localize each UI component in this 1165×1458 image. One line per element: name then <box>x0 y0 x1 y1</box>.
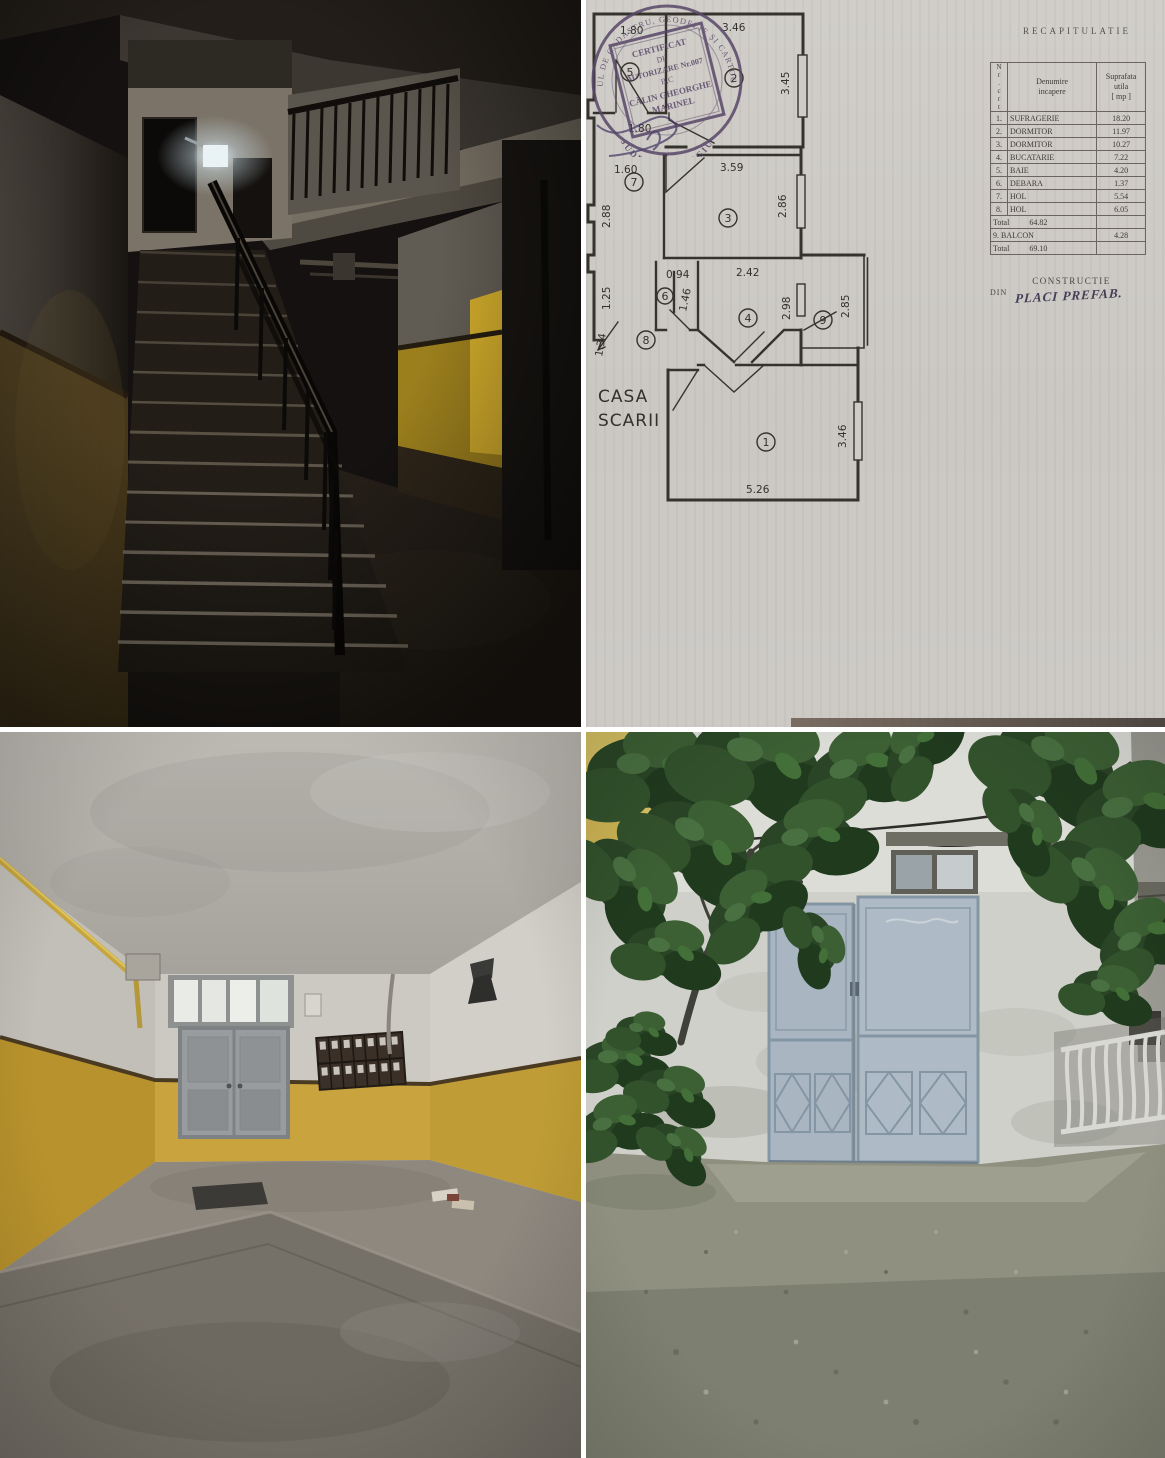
balcony-area: 4.28 <box>1097 229 1146 242</box>
vignette <box>586 732 1165 1458</box>
table-row: 3. DORMITOR 10.27 <box>991 138 1146 151</box>
cell-nr: 8. <box>991 203 1008 216</box>
header-name: Denumire incapere <box>1008 63 1097 112</box>
cell-nr: 2. <box>991 125 1008 138</box>
cell-name: HOL <box>1008 203 1097 216</box>
svg-text:SCARII: SCARII <box>598 411 660 431</box>
cell-area: 7.22 <box>1097 151 1146 164</box>
subtotal-cell: Total64.82 <box>991 216 1097 229</box>
svg-text:3.59: 3.59 <box>720 162 743 174</box>
svg-text:2.88: 2.88 <box>601 205 613 228</box>
balcony-name: BALCON <box>1001 231 1034 240</box>
courtyard-scene <box>586 732 1165 1458</box>
cell-name: HOL <box>1008 190 1097 203</box>
authorization-stamp: OFICIUL DE CADASTRU, GEODEZIE ȘI CARTOGR… <box>586 0 748 157</box>
entrance-hall-scene <box>0 732 581 1458</box>
balcony-row: 9. BALCON 4.28 <box>991 229 1146 242</box>
svg-text:2.42: 2.42 <box>736 267 759 279</box>
svg-text:2.86: 2.86 <box>777 194 789 218</box>
svg-text:6: 6 <box>662 290 669 303</box>
photo-entrance-hall <box>0 732 581 1458</box>
scan-edge-strip <box>791 718 1165 727</box>
cell-area: 6.05 <box>1097 203 1146 216</box>
cell-area: 11.97 <box>1097 125 1146 138</box>
table-row: 1. SUFRAGERIE 18.20 <box>991 112 1146 125</box>
header-area: Suprafata utila [ mp ] <box>1097 63 1146 112</box>
cell-name: DORMITOR <box>1008 138 1097 151</box>
construction-handwriting: PLACI PREFAB. <box>1015 285 1124 307</box>
svg-text:1.25: 1.25 <box>601 287 613 310</box>
svg-text:B,C: B,C <box>660 75 674 87</box>
construction-title: CONSTRUCTIE <box>984 276 1159 286</box>
cell-area: 1.37 <box>1097 177 1146 190</box>
svg-text:9: 9 <box>820 314 827 327</box>
total-value: 69.10 <box>1029 244 1047 253</box>
empty-cell <box>1097 216 1146 229</box>
cell-name: BAIE <box>1008 164 1097 177</box>
balcony-nr: 9. <box>993 231 999 240</box>
document-title: RECAPITULATIE <box>1023 26 1131 36</box>
svg-text:8: 8 <box>643 334 650 347</box>
svg-text:5.26: 5.26 <box>746 484 770 496</box>
photo-stairwell <box>0 0 581 727</box>
cell-nr: 5. <box>991 164 1008 177</box>
table-row: 4. BUCATARIE 7.22 <box>991 151 1146 164</box>
table-header-row: N r . c r t Denumire incapere Suprafata … <box>991 63 1146 112</box>
svg-text:3: 3 <box>725 212 732 225</box>
cell-nr: 1. <box>991 112 1008 125</box>
windows <box>797 55 862 460</box>
vignette <box>0 732 581 1458</box>
balcony-walls <box>801 255 868 348</box>
cell-area: 18.20 <box>1097 112 1146 125</box>
cell-name: DEBARA <box>1008 177 1097 190</box>
stairwell-scene <box>0 0 581 727</box>
cell-name: DORMITOR <box>1008 125 1097 138</box>
cell-name: BUCATARIE <box>1008 151 1097 164</box>
empty-cell <box>1097 242 1146 255</box>
cell-nr: 3. <box>991 138 1008 151</box>
cell-area: 10.27 <box>1097 138 1146 151</box>
cell-nr: 7. <box>991 190 1008 203</box>
total-row: Total69.10 <box>991 242 1146 255</box>
area-table: N r . c r t Denumire incapere Suprafata … <box>990 62 1146 255</box>
cell-area: 4.20 <box>1097 164 1146 177</box>
svg-text:2.98: 2.98 <box>781 297 793 320</box>
cell-nr: 6. <box>991 177 1008 190</box>
cell-nr: 4. <box>991 151 1008 164</box>
construction-note: CONSTRUCTIE DIN PLACI PREFAB. <box>984 276 1159 304</box>
stamp-certificate-box: CERTIFICAT DE AUTORIZARE Nr.007 B,C CĂLI… <box>610 23 724 137</box>
casa-scarii-label: CASA SCARII <box>598 387 660 431</box>
svg-text:4: 4 <box>745 312 752 325</box>
svg-text:2.85: 2.85 <box>840 295 852 318</box>
svg-text:7: 7 <box>631 176 638 189</box>
svg-text:1.46: 1.46 <box>677 287 694 313</box>
subtotal-row: Total64.82 <box>991 216 1146 229</box>
balcony-cell: 9. BALCON <box>991 229 1097 242</box>
subtotal-value: 64.82 <box>1029 218 1047 227</box>
table-row: 5. BAIE 4.20 <box>991 164 1146 177</box>
table-row: 8. HOL 6.05 <box>991 203 1146 216</box>
svg-text:3.45: 3.45 <box>780 72 792 95</box>
total-label: Total <box>993 244 1009 253</box>
total-cell: Total69.10 <box>991 242 1097 255</box>
svg-text:0.94: 0.94 <box>666 269 690 281</box>
svg-text:1.34: 1.34 <box>593 332 609 357</box>
cell-area: 5.54 <box>1097 190 1146 203</box>
subtotal-label: Total <box>993 218 1009 227</box>
table-row: 7. HOL 5.54 <box>991 190 1146 203</box>
svg-text:1: 1 <box>763 436 770 449</box>
cell-name: SUFRAGERIE <box>1008 112 1097 125</box>
svg-text:3.46: 3.46 <box>837 424 849 448</box>
table-row: 6. DEBARA 1.37 <box>991 177 1146 190</box>
svg-text:1.60: 1.60 <box>614 164 637 176</box>
header-nr: N r . c r t <box>991 63 1008 112</box>
construction-prefix: DIN <box>990 288 1007 297</box>
vignette <box>0 0 581 727</box>
svg-text:DE: DE <box>656 53 669 64</box>
document-floor-plan: RECAPITULATIE N r . c r t Denumire incap… <box>586 0 1165 727</box>
photo-courtyard-gate <box>586 732 1165 1458</box>
svg-text:CASA: CASA <box>598 387 648 407</box>
photo-collage: RECAPITULATIE N r . c r t Denumire incap… <box>0 0 1165 1458</box>
table-row: 2. DORMITOR 11.97 <box>991 125 1146 138</box>
